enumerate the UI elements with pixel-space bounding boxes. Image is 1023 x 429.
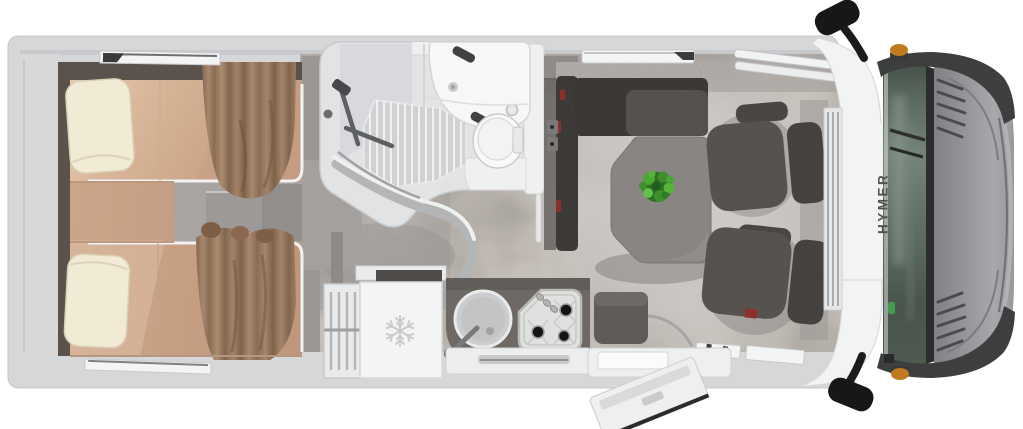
- svg-text:HYMER: HYMER: [876, 173, 891, 234]
